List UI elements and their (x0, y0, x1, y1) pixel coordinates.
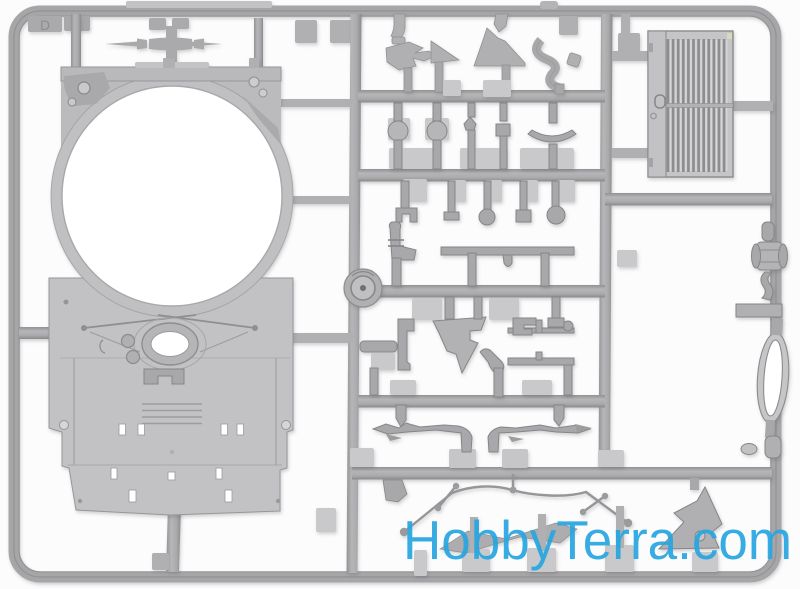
svg-text:HobbyTerra.com: HobbyTerra.com (403, 509, 792, 571)
svg-text:D: D (40, 17, 50, 33)
